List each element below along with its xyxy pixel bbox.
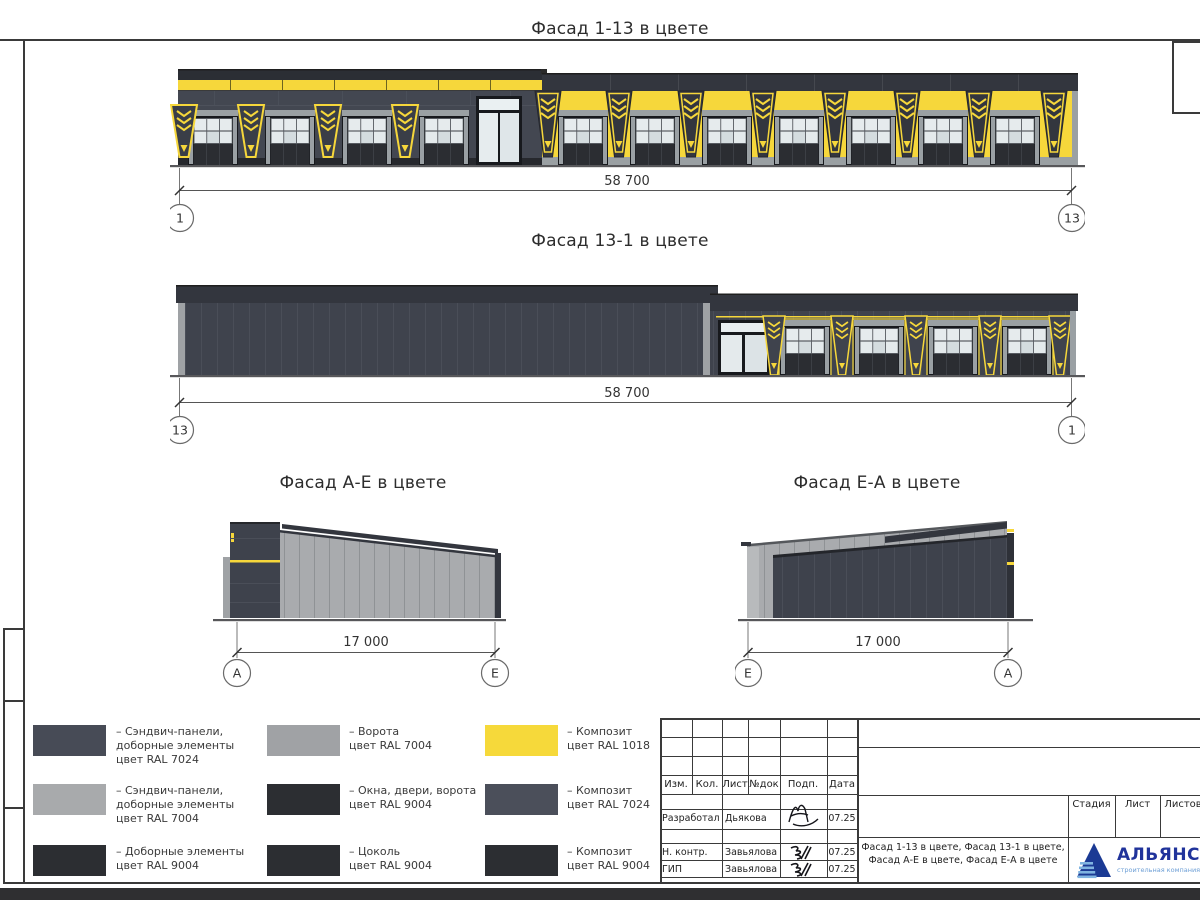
ground-line — [170, 375, 1085, 377]
garage-door — [1002, 320, 1052, 375]
frame-side-stamp-line — [3, 807, 24, 809]
facade-1-13-drawing: 58 700 1 13 — [170, 62, 1085, 237]
garage-door — [702, 110, 752, 165]
legend-label: – Ворота цвет RAL 7004 — [349, 725, 479, 753]
frame-bottom-border — [3, 882, 1200, 884]
facade-13-1-drawing: 58 700 13 1 — [170, 283, 1085, 448]
tb-name: Дьякова — [725, 813, 780, 824]
garage-door — [774, 110, 824, 165]
signature — [786, 861, 826, 877]
title-block-line — [857, 747, 1200, 748]
facade-13-1-dimension: 58 700 13 1 — [170, 378, 1085, 444]
ground-line — [213, 619, 506, 621]
facade-e-a-title: Фасад Е-А в цвете — [707, 473, 1047, 493]
dimension-text: 17 000 — [855, 635, 901, 650]
tb-stage-label: Стадия — [1068, 799, 1115, 810]
frame-corner-box — [1172, 41, 1200, 114]
title-block-line — [660, 737, 858, 738]
color-swatch — [33, 845, 106, 876]
garage-door — [558, 110, 608, 165]
frame-side-stamp-line — [3, 700, 24, 702]
garage-door — [928, 320, 978, 375]
title-block-line — [660, 794, 858, 795]
tb-name: Завьялова — [725, 847, 780, 858]
axis-label: Е — [744, 666, 752, 681]
dimension-text: 58 700 — [604, 174, 650, 189]
legend-label: – Сэндвич-панели, доборные элементы цвет… — [116, 725, 261, 767]
title-block-line — [660, 756, 858, 757]
axis-label: 13 — [1064, 211, 1080, 226]
facade-1-13-title: Фасад 1-13 в цвете — [420, 19, 820, 39]
garage-door — [854, 320, 904, 375]
legend-label: – Сэндвич-панели, доборные элементы цвет… — [116, 784, 261, 826]
frame-side-stamp-line — [3, 628, 5, 884]
title-block-line — [660, 829, 858, 830]
facade-13-1-right-block — [710, 294, 1078, 377]
title-block-line — [857, 837, 1200, 838]
title-block-line — [660, 877, 858, 878]
legend-label: – Цоколь цвет RAL 9004 — [349, 845, 479, 873]
entrance-door — [476, 96, 522, 165]
title-block-line — [857, 718, 859, 883]
signature — [786, 844, 826, 860]
garage-door — [780, 320, 830, 375]
tb-date: 07.25 — [827, 847, 857, 858]
tb-name: Завьялова — [725, 864, 780, 875]
legend-label: – Композит цвет RAL 1018 — [567, 725, 687, 753]
color-swatch — [33, 784, 106, 815]
legend-label: – Окна, двери, ворота цвет RAL 9004 — [349, 784, 479, 812]
facade-13-1-left-block — [176, 285, 718, 375]
axis-label: 13 — [172, 423, 188, 438]
logo-text: АЛЬЯНС строительная компания — [1117, 847, 1200, 874]
tb-date: 07.25 — [827, 864, 857, 875]
facade-a-e-title: Фасад А-Е в цвете — [193, 473, 533, 493]
title-block-line — [722, 718, 723, 877]
title-block-line — [660, 775, 858, 776]
color-swatch — [267, 784, 340, 815]
tb-role: Н. контр. — [662, 847, 722, 858]
frame-top-border — [0, 39, 1200, 41]
frame-left-border — [23, 39, 25, 884]
dimension-text: 58 700 — [604, 386, 650, 401]
garage-door — [918, 110, 968, 165]
title-block-line — [660, 809, 858, 810]
color-swatch — [267, 725, 340, 756]
facade-e-a-building — [741, 521, 1014, 618]
garage-door — [990, 110, 1040, 165]
tb-role: ГИП — [662, 864, 722, 875]
facade-a-e-drawing: 17 000 А Е — [195, 505, 525, 690]
axis-label: А — [1004, 666, 1013, 681]
tb-sheet-label: Лист — [1115, 799, 1160, 810]
facade-1-13-right-block — [535, 69, 1078, 165]
title-block-line — [780, 718, 781, 877]
facade-1-13-left-block — [171, 69, 544, 165]
garage-door — [630, 110, 680, 165]
color-swatch — [485, 784, 558, 815]
legend-label: – Доборные элементы цвет RAL 9004 — [116, 845, 276, 873]
facade-1-13-dimension: 58 700 1 13 — [170, 168, 1085, 232]
garage-door — [846, 110, 896, 165]
title-block-line — [857, 795, 1200, 796]
logo-pyramid-icon — [1076, 841, 1112, 879]
garage-door — [265, 110, 315, 165]
ground-line — [738, 619, 1033, 621]
facade-a-e-building — [223, 522, 501, 618]
color-swatch — [267, 845, 340, 876]
title-block-line — [660, 843, 858, 844]
tb-role: Разработал — [662, 813, 722, 824]
color-swatch — [485, 725, 558, 756]
tb-date: 07.25 — [827, 813, 857, 824]
dimension-text: 17 000 — [343, 635, 389, 650]
axis-label: 1 — [1068, 423, 1076, 438]
title-block-line — [660, 718, 1200, 720]
document-title: Фасад 1-13 в цвете, Фасад 13-1 в цвете, … — [860, 841, 1066, 868]
signature — [784, 800, 826, 827]
facade-a-e-dimension: 17 000 А Е — [224, 622, 509, 687]
title-block-line — [660, 718, 662, 883]
logo-tagline: строительная компания — [1117, 866, 1200, 874]
axis-label: А — [233, 666, 242, 681]
color-swatch — [485, 845, 558, 876]
ground-line — [170, 165, 1085, 167]
logo-name: АЛЬЯНС — [1117, 847, 1200, 864]
color-swatch — [33, 725, 106, 756]
axis-label: Е — [491, 666, 499, 681]
tb-sheets-label: Листов — [1160, 799, 1200, 810]
axis-label: 1 — [176, 211, 184, 226]
entrance-door — [718, 320, 770, 375]
garage-door — [419, 110, 469, 165]
frame-side-stamp-line — [3, 628, 24, 630]
garage-door — [342, 110, 392, 165]
tb-col-data: Дата — [817, 779, 867, 790]
facade-e-a-drawing: 17 000 Е А — [735, 505, 1035, 690]
viewport-bottom-band — [0, 888, 1200, 900]
facade-e-a-dimension: 17 000 Е А — [735, 622, 1022, 687]
title-block-line — [660, 860, 858, 861]
company-logo: АЛЬЯНС строительная компания — [1076, 839, 1200, 881]
